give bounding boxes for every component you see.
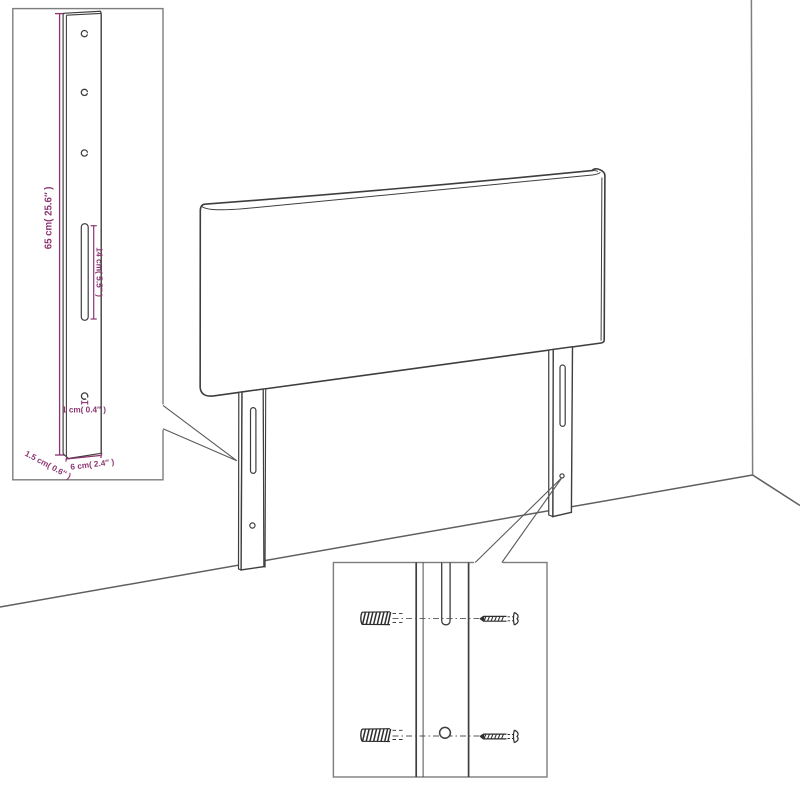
svg-text:1.5 cm( 0.6″ ): 1.5 cm( 0.6″ ) (23, 449, 72, 481)
svg-text:1 cm( 0.4″ ): 1 cm( 0.4″ ) (62, 406, 106, 415)
svg-text:6 cm( 2.4″ ): 6 cm( 2.4″ ) (70, 457, 115, 471)
svg-text:14 cm( 5.5″ ): 14 cm( 5.5″ ) (95, 247, 105, 297)
svg-text:65 cm( 25.6″ ): 65 cm( 25.6″ ) (43, 186, 54, 249)
